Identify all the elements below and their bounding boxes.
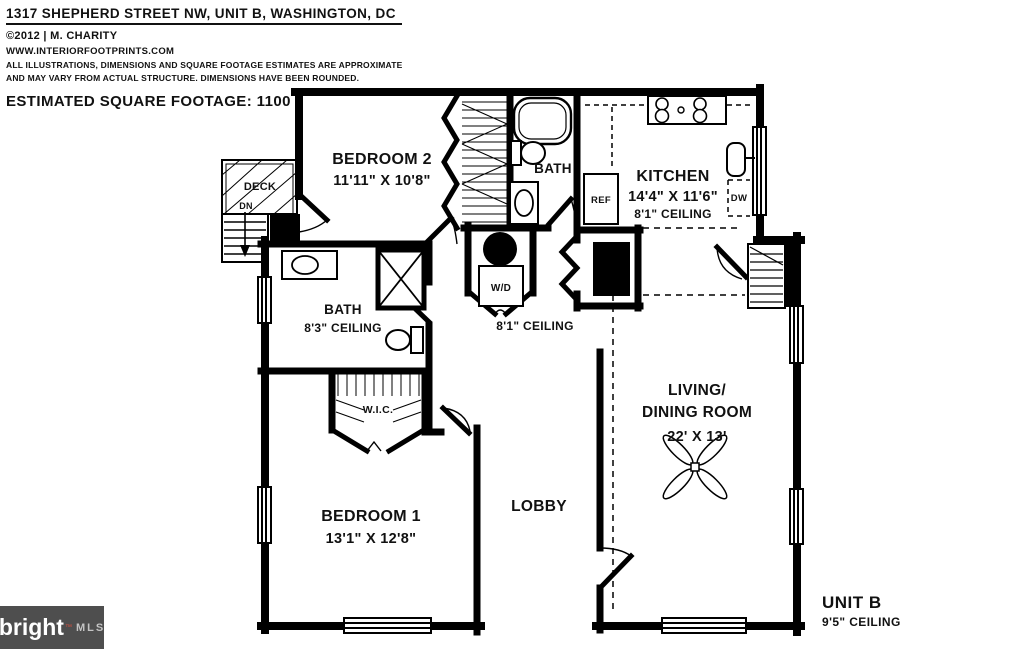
door-bath-upper [549, 199, 571, 224]
laundry-label: W/D [491, 283, 511, 294]
window-left-upper [258, 277, 271, 323]
hall-ceiling-label: 8'1" CEILING [496, 319, 574, 333]
door-lobby-living [601, 556, 631, 587]
bedroom2-label: BEDROOM 2 [332, 151, 432, 168]
door-deck [299, 194, 327, 220]
bedroom1-dims: 13'1" X 12'8" [326, 531, 417, 547]
window-right-lower [790, 489, 803, 544]
logo-trademark: ™ [65, 624, 72, 631]
bath-upper-label: BATH [534, 161, 572, 176]
bath-main-ceiling: 8'3" CEILING [304, 321, 382, 335]
window-living-bottom [662, 618, 746, 633]
deck-label: DECK [244, 181, 276, 193]
door-utility-accordion [562, 236, 577, 300]
bedroom2-dims: 11'11" X 10'8" [333, 173, 430, 189]
laundry-drum [483, 232, 517, 266]
refrigerator-label: REF [591, 195, 611, 206]
living-label-line2: DINING ROOM [642, 404, 752, 421]
door-bedroom2-closet-accordion [444, 96, 457, 228]
shower [378, 250, 424, 308]
pantry-shelves [748, 244, 785, 308]
kitchen-sink [727, 143, 755, 176]
window-left-lower [258, 487, 271, 543]
door-pantry [717, 247, 746, 277]
unit-label-block: UNIT B 9'5" CEILING [822, 593, 901, 629]
bedroom2-closet-hatch [462, 102, 507, 222]
toilet-main [386, 327, 423, 353]
deck-dn-label: DN [239, 201, 253, 211]
utility-box [593, 242, 630, 296]
kitchen-ceiling: 8'1" CEILING [634, 207, 712, 221]
living-label-line1: LIVING/ [668, 382, 726, 399]
kitchen-dims: 14'4" X 11'6" [628, 189, 718, 205]
floor-plan-drawing: DECK DN BEDROOM 2 11'11" X 10'8" BATH KI… [0, 0, 1024, 649]
bath-main-label: BATH [324, 302, 362, 317]
unit-name: UNIT B [822, 593, 901, 613]
dishwasher-label: DW [731, 193, 747, 204]
laundry-fixtures [479, 232, 523, 306]
living-dims: 22' X 13' [667, 429, 727, 445]
wic-label: W.I.C. [363, 404, 393, 416]
down-arrow-head [240, 245, 250, 257]
stove [648, 96, 726, 124]
window-bedroom1-bottom [344, 618, 431, 633]
lobby-label: LOBBY [511, 498, 567, 515]
exterior-walls [261, 88, 801, 632]
door-bedroom2-hall [425, 218, 451, 244]
logo-suffix-text: MLS [76, 622, 105, 634]
kitchen-label: KITCHEN [636, 168, 709, 185]
window-right-upper [790, 306, 803, 363]
unit-ceiling: 9'5" CEILING [822, 615, 901, 629]
wall-block-deck-corner [270, 214, 300, 242]
brightmls-logo: bright™ MLS [0, 606, 104, 649]
floor-plan-page: 1317 SHEPHERD STREET NW, UNIT B, WASHING… [0, 0, 1024, 649]
bedroom1-label: BEDROOM 1 [321, 508, 421, 525]
wall-block-pantry [785, 242, 799, 307]
window-kitchen-right [753, 127, 766, 215]
sink-main [282, 251, 337, 279]
logo-brand-text: bright [0, 616, 64, 639]
sink-upper [510, 182, 538, 224]
